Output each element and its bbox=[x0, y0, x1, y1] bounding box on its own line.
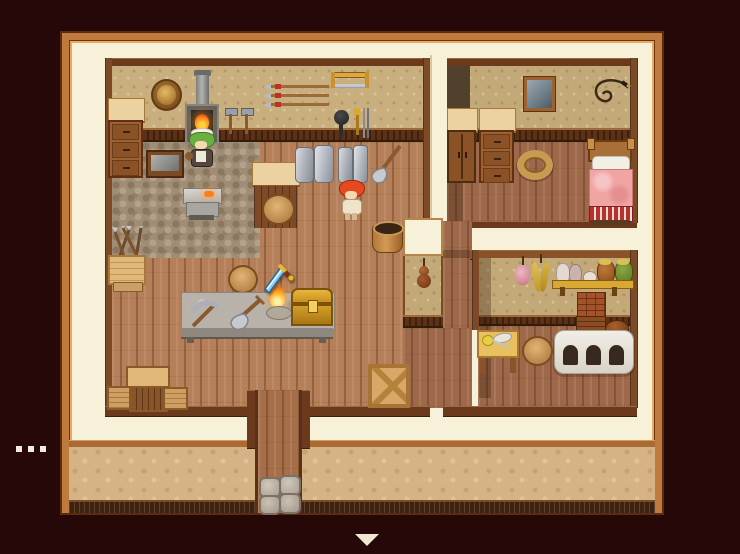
small-crate bbox=[163, 387, 188, 410]
floor-stool[interactable] bbox=[228, 265, 258, 294]
hot-metal bbox=[204, 191, 214, 197]
kitchen-west-trim bbox=[472, 250, 479, 330]
grindstone-table bbox=[146, 150, 184, 178]
spear-rack bbox=[263, 84, 330, 110]
game-viewport[interactable] bbox=[0, 0, 740, 554]
bedroom-cupboard bbox=[447, 108, 478, 184]
spear-band bbox=[275, 102, 281, 107]
smithy-dresser bbox=[108, 98, 145, 180]
wall-shield bbox=[151, 79, 182, 111]
kitchen-stool[interactable] bbox=[522, 336, 553, 366]
hanging-gourd bbox=[415, 258, 433, 296]
red-leg bbox=[345, 213, 350, 220]
front-wall-baseboard bbox=[69, 500, 655, 513]
bed-base bbox=[591, 220, 629, 225]
gourd-wall-top bbox=[403, 218, 443, 256]
door-frame-left bbox=[247, 390, 255, 449]
smithy-wainscot bbox=[105, 128, 430, 142]
saw-bar bbox=[333, 72, 369, 78]
hammer-handle bbox=[245, 114, 248, 134]
maid-hammer bbox=[185, 152, 193, 160]
ingot-stack bbox=[338, 145, 368, 183]
counter-stool[interactable] bbox=[262, 194, 295, 225]
bed-blanket bbox=[589, 169, 633, 209]
maid-apron bbox=[196, 151, 206, 162]
bedroom-dresser bbox=[479, 108, 516, 183]
bedroom-corner-shadow bbox=[447, 66, 470, 110]
dresser-body bbox=[479, 130, 514, 183]
kitchen-bottom-trim bbox=[443, 406, 637, 417]
pot-lid bbox=[617, 259, 629, 265]
corn-cob bbox=[539, 262, 550, 293]
white-oven[interactable] bbox=[554, 330, 634, 374]
counter-top bbox=[252, 162, 300, 187]
anvil-workbench bbox=[183, 176, 220, 220]
wall-whip bbox=[589, 77, 631, 115]
water-bucket bbox=[372, 221, 401, 252]
leaning-shovel bbox=[370, 142, 404, 186]
kitchen-left-shadow bbox=[479, 258, 491, 398]
ellipsis-dot bbox=[16, 446, 22, 452]
flame-base bbox=[266, 306, 292, 320]
bucket-rim bbox=[373, 221, 404, 236]
ellipsis-dot bbox=[40, 446, 46, 452]
bed-post bbox=[587, 138, 595, 150]
gourd-bottom bbox=[417, 274, 431, 288]
forge-chimney bbox=[196, 75, 209, 106]
chest-lock bbox=[308, 300, 318, 313]
message-ellipsis bbox=[16, 446, 52, 453]
wall-hammers bbox=[222, 108, 255, 136]
ingot bbox=[338, 147, 353, 183]
prep-table-leg bbox=[480, 358, 486, 373]
passage-floor bbox=[403, 328, 472, 408]
hanging-corn bbox=[531, 254, 551, 298]
bed-post bbox=[627, 138, 635, 150]
saw-handle bbox=[365, 72, 369, 88]
tongs-icon bbox=[363, 108, 365, 138]
ellipsis-dot bbox=[28, 446, 34, 452]
stepping-stone bbox=[259, 495, 281, 515]
spear-box-plaque bbox=[113, 282, 143, 292]
ingot bbox=[314, 145, 334, 183]
table-leg bbox=[319, 337, 326, 343]
shelf-bracket bbox=[560, 287, 565, 296]
front-wall-stucco bbox=[69, 447, 655, 500]
spear-box-body bbox=[108, 255, 146, 285]
red-leg bbox=[352, 213, 357, 220]
prep-table bbox=[477, 330, 520, 375]
ingot bbox=[353, 145, 368, 183]
prep-table-leg bbox=[510, 358, 516, 373]
ladle-handle bbox=[356, 115, 359, 135]
pan-icon bbox=[334, 110, 349, 125]
red-face bbox=[345, 191, 357, 199]
hanging-tools bbox=[333, 106, 369, 142]
garlic-bunch bbox=[515, 265, 530, 285]
bed[interactable] bbox=[588, 140, 632, 225]
gourd-wall-wainscot bbox=[403, 315, 443, 328]
anvil-base bbox=[189, 215, 214, 220]
treasure-chest[interactable] bbox=[291, 288, 333, 328]
hammer-handle bbox=[229, 114, 232, 134]
spear-tip bbox=[263, 93, 271, 99]
spear-tip bbox=[263, 102, 271, 108]
dresser-body bbox=[108, 120, 143, 178]
maid-face bbox=[195, 141, 207, 149]
stepping-stone bbox=[279, 493, 301, 514]
pot-lid bbox=[599, 259, 611, 265]
spear-band bbox=[275, 84, 281, 89]
rope-coil bbox=[517, 150, 553, 180]
hanging-garlic bbox=[514, 256, 532, 292]
continue-arrow-icon[interactable] bbox=[355, 534, 379, 546]
shelf-bracket bbox=[612, 287, 617, 296]
pickaxe bbox=[186, 296, 224, 330]
wall-saw bbox=[331, 72, 369, 94]
table-leg bbox=[187, 337, 194, 343]
oven-opening bbox=[586, 345, 601, 365]
sword-cursor-icon bbox=[262, 258, 294, 296]
grindstone-face bbox=[151, 155, 179, 171]
door-frame-right bbox=[302, 390, 310, 449]
npc-red-haired[interactable] bbox=[337, 180, 365, 222]
ingot bbox=[295, 147, 314, 183]
ingot-stack bbox=[295, 145, 335, 183]
tongs-icon bbox=[367, 108, 369, 138]
oven-opening bbox=[609, 345, 624, 365]
cupboard-body bbox=[447, 130, 476, 183]
spear-tip bbox=[263, 84, 271, 90]
table-shovel bbox=[224, 294, 266, 332]
screenshot-root: { "app": { "kind": "top-down RPG game sc… bbox=[0, 0, 740, 554]
npc-maid[interactable] bbox=[187, 128, 215, 180]
saw-blade bbox=[335, 84, 365, 88]
framed-picture bbox=[524, 77, 555, 111]
hallway-shadow bbox=[443, 250, 472, 258]
oven-opening bbox=[563, 345, 578, 365]
x-brace-crate bbox=[368, 364, 410, 408]
spear-box bbox=[107, 226, 149, 292]
pan-handle bbox=[339, 124, 343, 138]
spear-band bbox=[275, 93, 281, 98]
